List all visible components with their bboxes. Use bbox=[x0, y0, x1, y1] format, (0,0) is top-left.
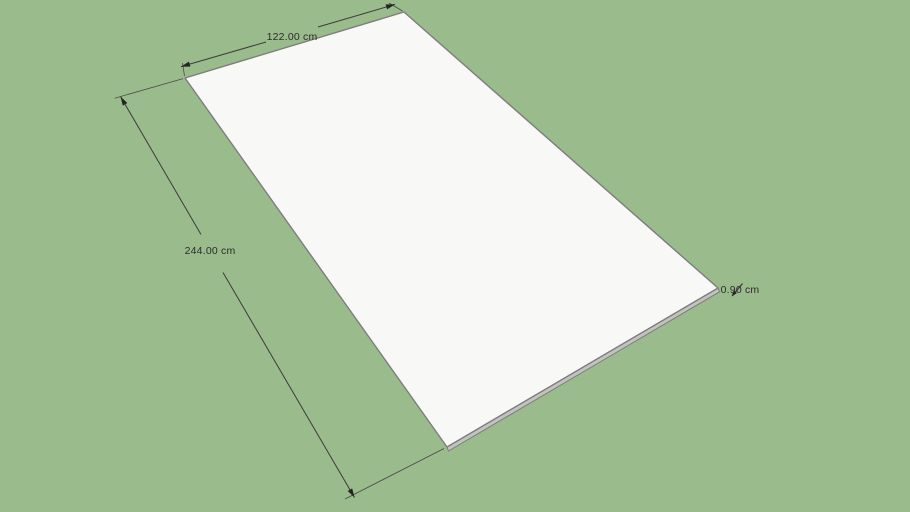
thickness-dimension[interactable]: 0.90 cm bbox=[721, 284, 760, 297]
thickness-dimension-label[interactable]: 0.90 cm bbox=[721, 284, 760, 296]
length-dimension-label[interactable]: 244.00 cm bbox=[185, 245, 236, 257]
3d-viewport[interactable]: 122.00 cm 244.00 cm 0.90 cm bbox=[0, 0, 910, 512]
width-dimension-label[interactable]: 122.00 cm bbox=[267, 31, 318, 43]
